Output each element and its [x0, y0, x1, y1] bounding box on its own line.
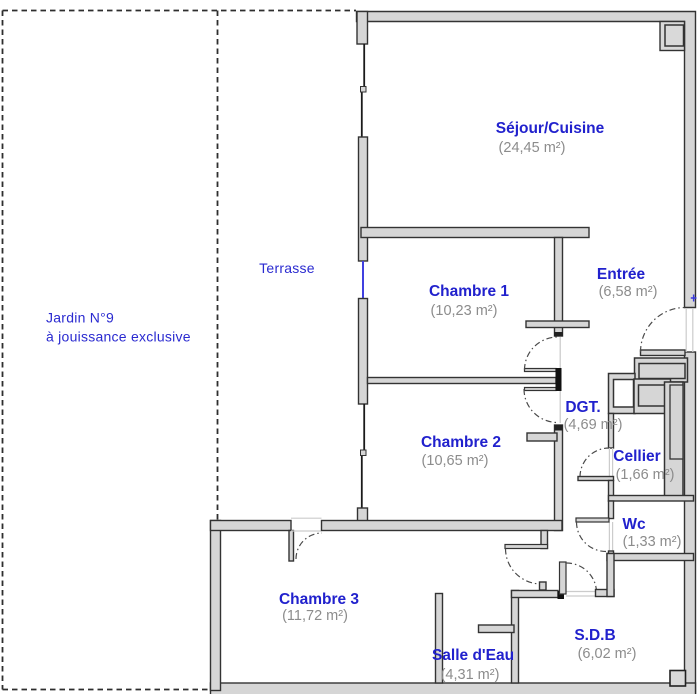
svg-text:(1,66 m²): (1,66 m²) — [616, 467, 675, 483]
svg-text:S.D.B: S.D.B — [574, 627, 615, 644]
svg-text:DGT.: DGT. — [565, 399, 600, 416]
svg-text:(4,31 m²): (4,31 m²) — [441, 667, 500, 683]
svg-text:Entrée: Entrée — [597, 266, 646, 283]
svg-text:(11,72 m²): (11,72 m²) — [282, 608, 348, 624]
svg-text:Salle d'Eau: Salle d'Eau — [432, 647, 514, 664]
svg-text:à jouissance exclusive: à jouissance exclusive — [46, 329, 191, 345]
svg-text:Wc: Wc — [622, 516, 646, 533]
svg-text:Séjour/Cuisine: Séjour/Cuisine — [496, 120, 605, 137]
svg-text:Chambre 1: Chambre 1 — [429, 283, 509, 300]
svg-text:Jardin N°9: Jardin N°9 — [46, 310, 114, 326]
svg-text:(10,65 m²): (10,65 m²) — [422, 453, 489, 469]
svg-text:(6,58 m²): (6,58 m²) — [599, 284, 658, 300]
svg-text:Cellier: Cellier — [613, 448, 660, 465]
svg-text:(1,33 m²): (1,33 m²) — [623, 534, 682, 550]
svg-text:Terrasse: Terrasse — [259, 260, 315, 276]
svg-text:Chambre 3: Chambre 3 — [279, 591, 359, 608]
svg-text:(6,02 m²): (6,02 m²) — [578, 646, 637, 662]
svg-text:(10,23 m²): (10,23 m²) — [431, 303, 498, 319]
svg-text:Chambre 2: Chambre 2 — [421, 434, 501, 451]
svg-text:(24,45 m²): (24,45 m²) — [499, 140, 566, 156]
svg-text:(4,69 m²): (4,69 m²) — [564, 417, 623, 433]
